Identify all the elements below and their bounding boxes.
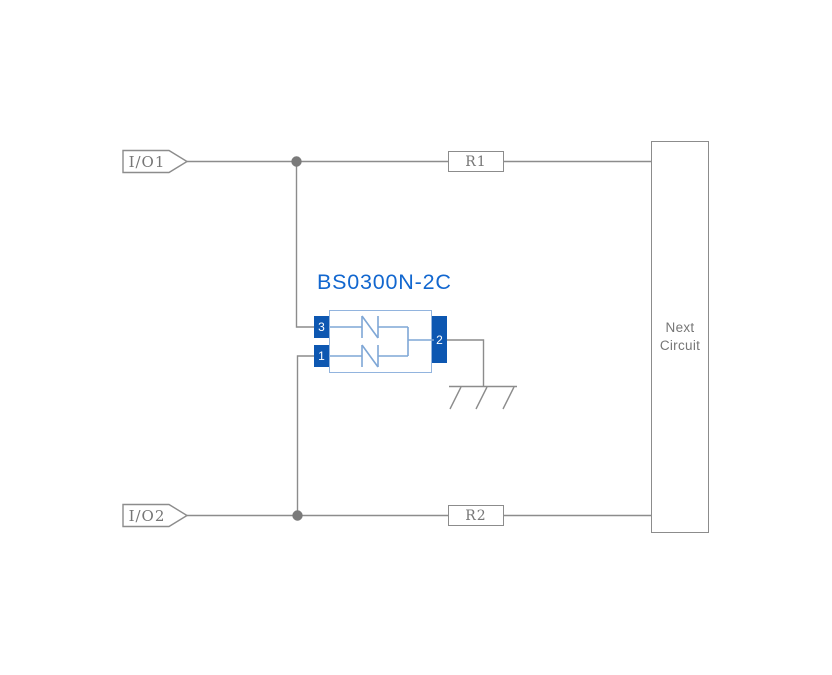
- tvs-diode-bottom-icon: [330, 345, 408, 367]
- internal-bus-to-pin2: [408, 327, 434, 356]
- component-internals: [0, 0, 832, 675]
- tvs-diode-top-icon: [330, 316, 408, 338]
- circuit-diagram: I/O1 I/O2 R1 R2 Next Circuit BS0300N-2C …: [0, 0, 832, 675]
